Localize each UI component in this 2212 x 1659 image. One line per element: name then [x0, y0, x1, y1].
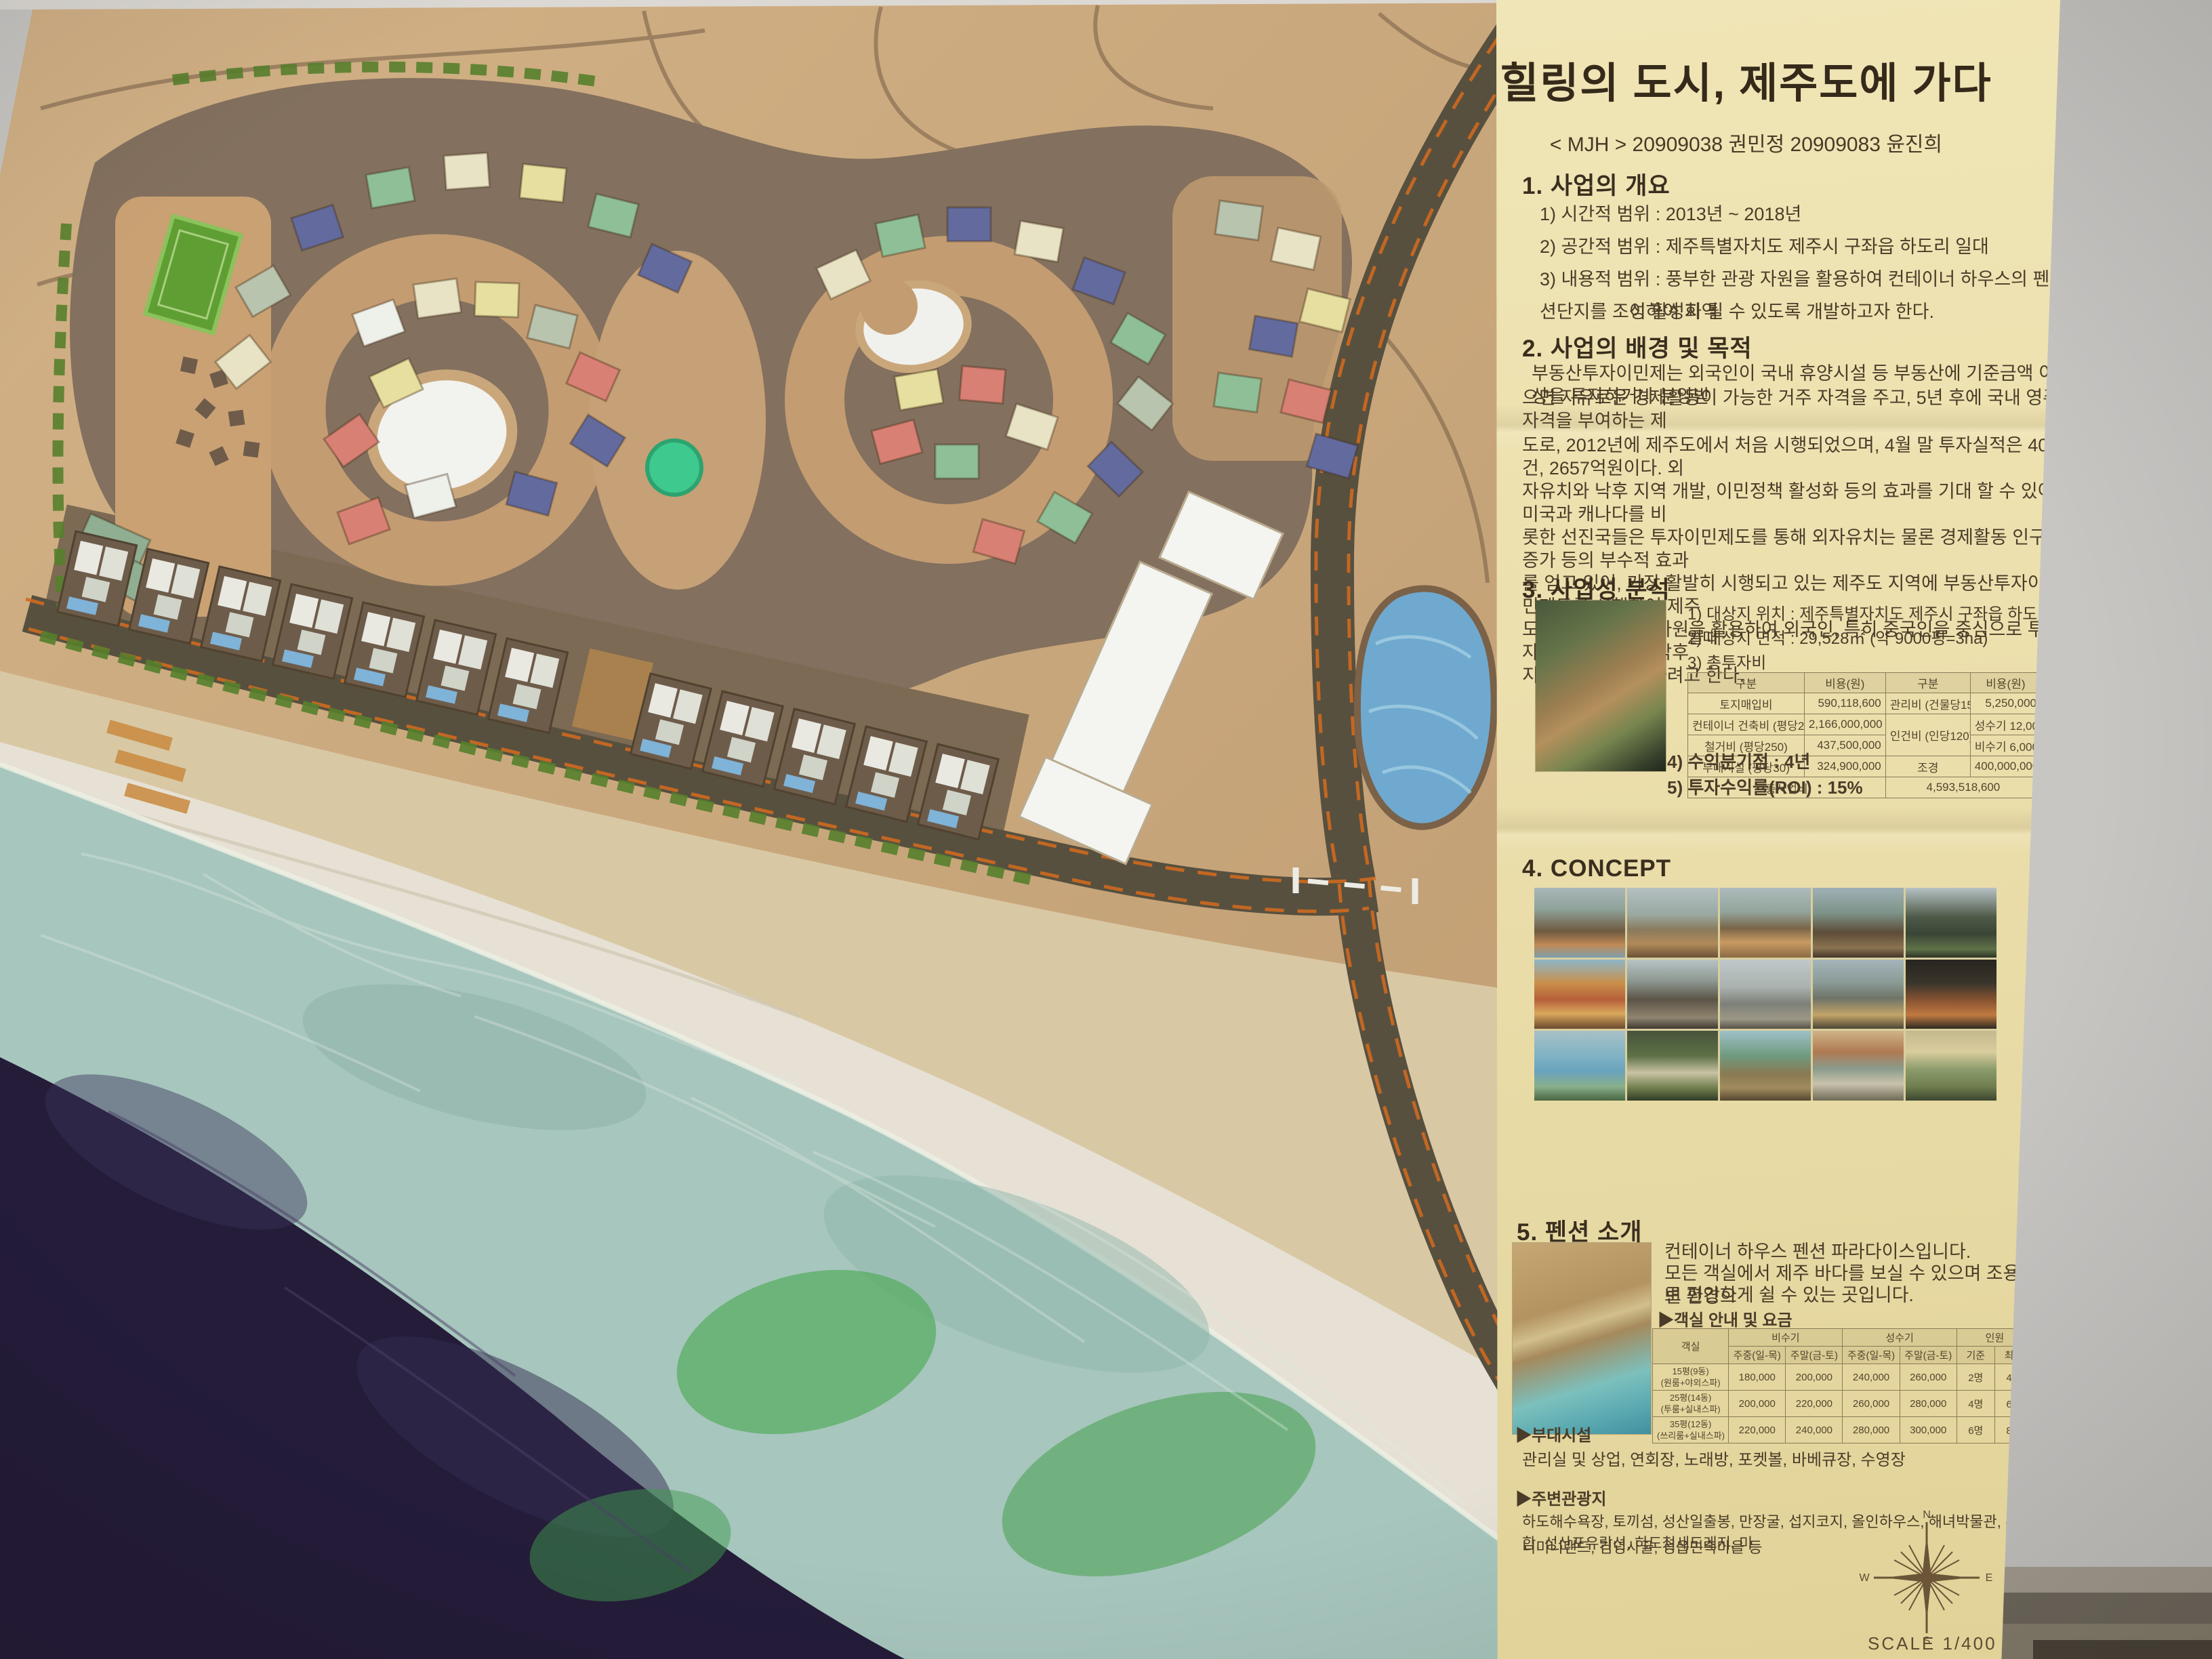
facilities-list: 관리실 및 상업, 연회장, 노래방, 포켓볼, 바베큐장, 수영장	[1522, 1446, 1906, 1470]
cost-cell: 토지매입비	[1688, 693, 1805, 714]
aerial-site-photo	[1536, 600, 1666, 771]
section4-heading: 4. CONCEPT	[1522, 855, 1671, 882]
concept-photo	[1534, 888, 1625, 958]
room-desc: (쓰리룸+실내스파)	[1657, 1430, 1724, 1441]
cost-cell: 590,118,600	[1804, 693, 1885, 714]
pension-intro-line: 컨테이너 하우스 펜션 파라다이스입니다.	[1664, 1240, 1971, 1263]
room-size: 25평(14동)	[1657, 1392, 1724, 1404]
cost-cell: 조경	[1885, 756, 1970, 777]
price-sub-header: 주중(일-목)	[1729, 1347, 1786, 1364]
cost-cell: 비수기 6,000,000	[1970, 735, 2041, 756]
price-cell: 6명	[1957, 1417, 1994, 1443]
price-sub-header: 기준	[1957, 1347, 1994, 1364]
concept-photo	[1906, 888, 1996, 958]
price-cell: 300,000	[1900, 1417, 1957, 1443]
price-cell: 240,000	[1786, 1417, 1843, 1443]
compass-rose: N S W E	[1859, 1510, 1994, 1645]
cost-cell: 400,000,000	[1970, 756, 2041, 777]
attractions-line: 니미니랜드, 김녕사굴, 성읍민속마을 등	[1522, 1536, 1762, 1557]
price-table: 객실 비수기 성수기 인원 주중(일-목) 주말(금-토) 주중(일-목) 주말…	[1652, 1328, 2033, 1443]
section1-heading: 1. 사업의 개요	[1522, 167, 1671, 201]
attractions-heading: ▶주변관광지	[1515, 1486, 1606, 1509]
concept-photo	[1627, 888, 1718, 958]
price-sub-header: 주말(금-토)	[1786, 1347, 1843, 1364]
table-row: 35평(12동) (쓰리룸+실내스파) 220,000 240,000 280,…	[1653, 1417, 2033, 1443]
concept-photo	[1534, 960, 1625, 1029]
concept-photo	[1813, 960, 1904, 1029]
price-cell: 2명	[1957, 1364, 1994, 1391]
price-cell: 180,000	[1729, 1364, 1786, 1391]
price-sub-header: 주말(금-토)	[1900, 1347, 1957, 1364]
cost-col-header: 구분	[1688, 673, 1805, 693]
room-desc: (원룸+야외스파)	[1657, 1377, 1724, 1389]
price-cell: 260,000	[1900, 1364, 1957, 1391]
cost-cell: 5,250,000	[1970, 693, 2041, 714]
byline: < MJH > 20909038 권민정 20909083 윤진희	[1496, 127, 1996, 157]
room-label: 35평(12동) (쓰리룸+실내스파)	[1653, 1417, 1729, 1443]
price-cell: 280,000	[1900, 1391, 1957, 1417]
cost-total-value: 4,593,518,600	[1885, 777, 2041, 798]
section2-heading: 2. 사업의 배경 및 목적	[1522, 329, 1753, 364]
pension-intro-line: 로 편안하게 쉴 수 있는 곳입니다.	[1664, 1284, 1914, 1307]
section3-note: 5) 투자수익률(ROI) : 15%	[1667, 774, 1863, 799]
cost-col-header: 구분	[1885, 673, 1970, 693]
concept-photo	[1627, 960, 1718, 1029]
resort-render-photo	[1513, 1243, 1651, 1434]
concept-photo	[1813, 888, 1904, 958]
cost-col-header: 비용(원)	[1804, 673, 1885, 693]
table-row: 25평(14동) (투룸+실내스파) 200,000 220,000 260,0…	[1653, 1391, 2033, 1417]
section3-note: 4) 수익분기점 : 4년	[1667, 748, 1810, 773]
photo-of-architectural-model-board: 힐링의 도시, 제주도에 가다 < MJH > 20909038 권민정 209…	[0, 0, 2212, 1659]
cost-cell: 인건비 (인당120)	[1885, 714, 1970, 756]
section3-item: 3) 총투자비	[1687, 649, 1766, 673]
concept-photo	[1906, 1031, 1996, 1101]
price-sub-header: 주중(일-목)	[1843, 1347, 1900, 1364]
paragraph-line: 자유치와 낙후 지역 개발, 이민정책 활성화 등의 효과를 기대 할 수 있어…	[1522, 480, 2060, 526]
table-row: 15평(9동) (원룸+야외스파) 180,000 200,000 240,00…	[1653, 1364, 2033, 1391]
section1-item: 1) 시간적 범위 : 2013년 ~ 2018년	[1540, 198, 1801, 230]
cost-cell: 컨테이너 건축비 (평당200)	[1688, 714, 1805, 735]
concept-photo	[1627, 1031, 1718, 1101]
room-desc: (투룸+실내스파)	[1657, 1404, 1724, 1415]
paper-fold-shadow	[1496, 806, 2060, 854]
price-cell: 280,000	[1843, 1417, 1900, 1443]
price-cell: 200,000	[1729, 1391, 1786, 1417]
price-col-group: 비수기	[1729, 1329, 1843, 1347]
price-cell: 220,000	[1786, 1391, 1843, 1417]
facilities-heading: ▶부대시설	[1515, 1422, 1591, 1446]
room-size: 15평(9동)	[1657, 1366, 1724, 1377]
section1-item: 2) 공간적 범위 : 제주특별자치도 제주시 구좌읍 하도리 일대	[1540, 230, 1989, 263]
cost-cell: 437,500,000	[1804, 735, 1885, 756]
price-caption: ▶객실 안내 및 요금	[1658, 1307, 1793, 1330]
scale-label: SCALE 1/400	[1868, 1633, 1997, 1654]
cost-cell: 성수기 12,000,000	[1970, 714, 2041, 735]
price-cell: 220,000	[1729, 1417, 1786, 1443]
concept-photo	[1534, 1031, 1625, 1101]
room-label: 15평(9동) (원룸+야외스파)	[1653, 1364, 1729, 1391]
concept-photo	[1720, 960, 1811, 1029]
table-row: 컨테이너 건축비 (평당200) 2,166,000,000 인건비 (인당12…	[1688, 714, 2041, 735]
price-cell: 260,000	[1843, 1391, 1900, 1417]
compass-east-label: E	[1986, 1572, 1993, 1584]
cost-cell: 2,166,000,000	[1804, 714, 1885, 735]
concept-photo-grid	[1534, 888, 1996, 1101]
price-cell: 240,000	[1843, 1364, 1900, 1391]
concept-photo	[1720, 1031, 1811, 1101]
section1-item: 이 활성화 될 수 있도록 개발하고자 한다.	[1629, 295, 1934, 328]
price-col-group: 객실	[1653, 1329, 1729, 1364]
section3-item: 2) 대상지 면적 : 29,528㎡ (약 9000평=3ha)	[1687, 625, 1988, 649]
cost-col-header: 비용(원)	[1970, 673, 2041, 693]
compass-north-label: N	[1923, 1510, 1931, 1521]
price-cell: 4명	[1957, 1391, 1994, 1417]
room-label: 25평(14동) (투룸+실내스파)	[1653, 1391, 1729, 1417]
room-size: 35평(12동)	[1657, 1418, 1724, 1430]
cost-cell: 관리비 (건물당15)	[1885, 693, 1970, 714]
info-panel: 힐링의 도시, 제주도에 가다 < MJH > 20909038 권민정 209…	[1496, 0, 2060, 1659]
paragraph-line: 롯한 선진국들은 투자이민제도를 통해 외자유치는 물론 경제활동 인구 증가 …	[1522, 526, 2060, 572]
concept-photo	[1906, 960, 1996, 1029]
concept-photo	[1813, 1031, 1904, 1101]
concept-photo	[1720, 888, 1811, 958]
table-row: 토지매입비 590,118,600 관리비 (건물당15) 5,250,000	[1688, 693, 2041, 714]
paragraph-line: 도로, 2012년에 제주도에서 처음 시행되었으며, 4월 말 투자실적은 4…	[1522, 434, 2060, 480]
price-cell: 200,000	[1786, 1364, 1843, 1391]
price-col-group: 성수기	[1843, 1329, 1957, 1347]
compass-west-label: W	[1859, 1572, 1870, 1584]
page-title: 힐링의 도시, 제주도에 가다	[1496, 49, 1996, 110]
